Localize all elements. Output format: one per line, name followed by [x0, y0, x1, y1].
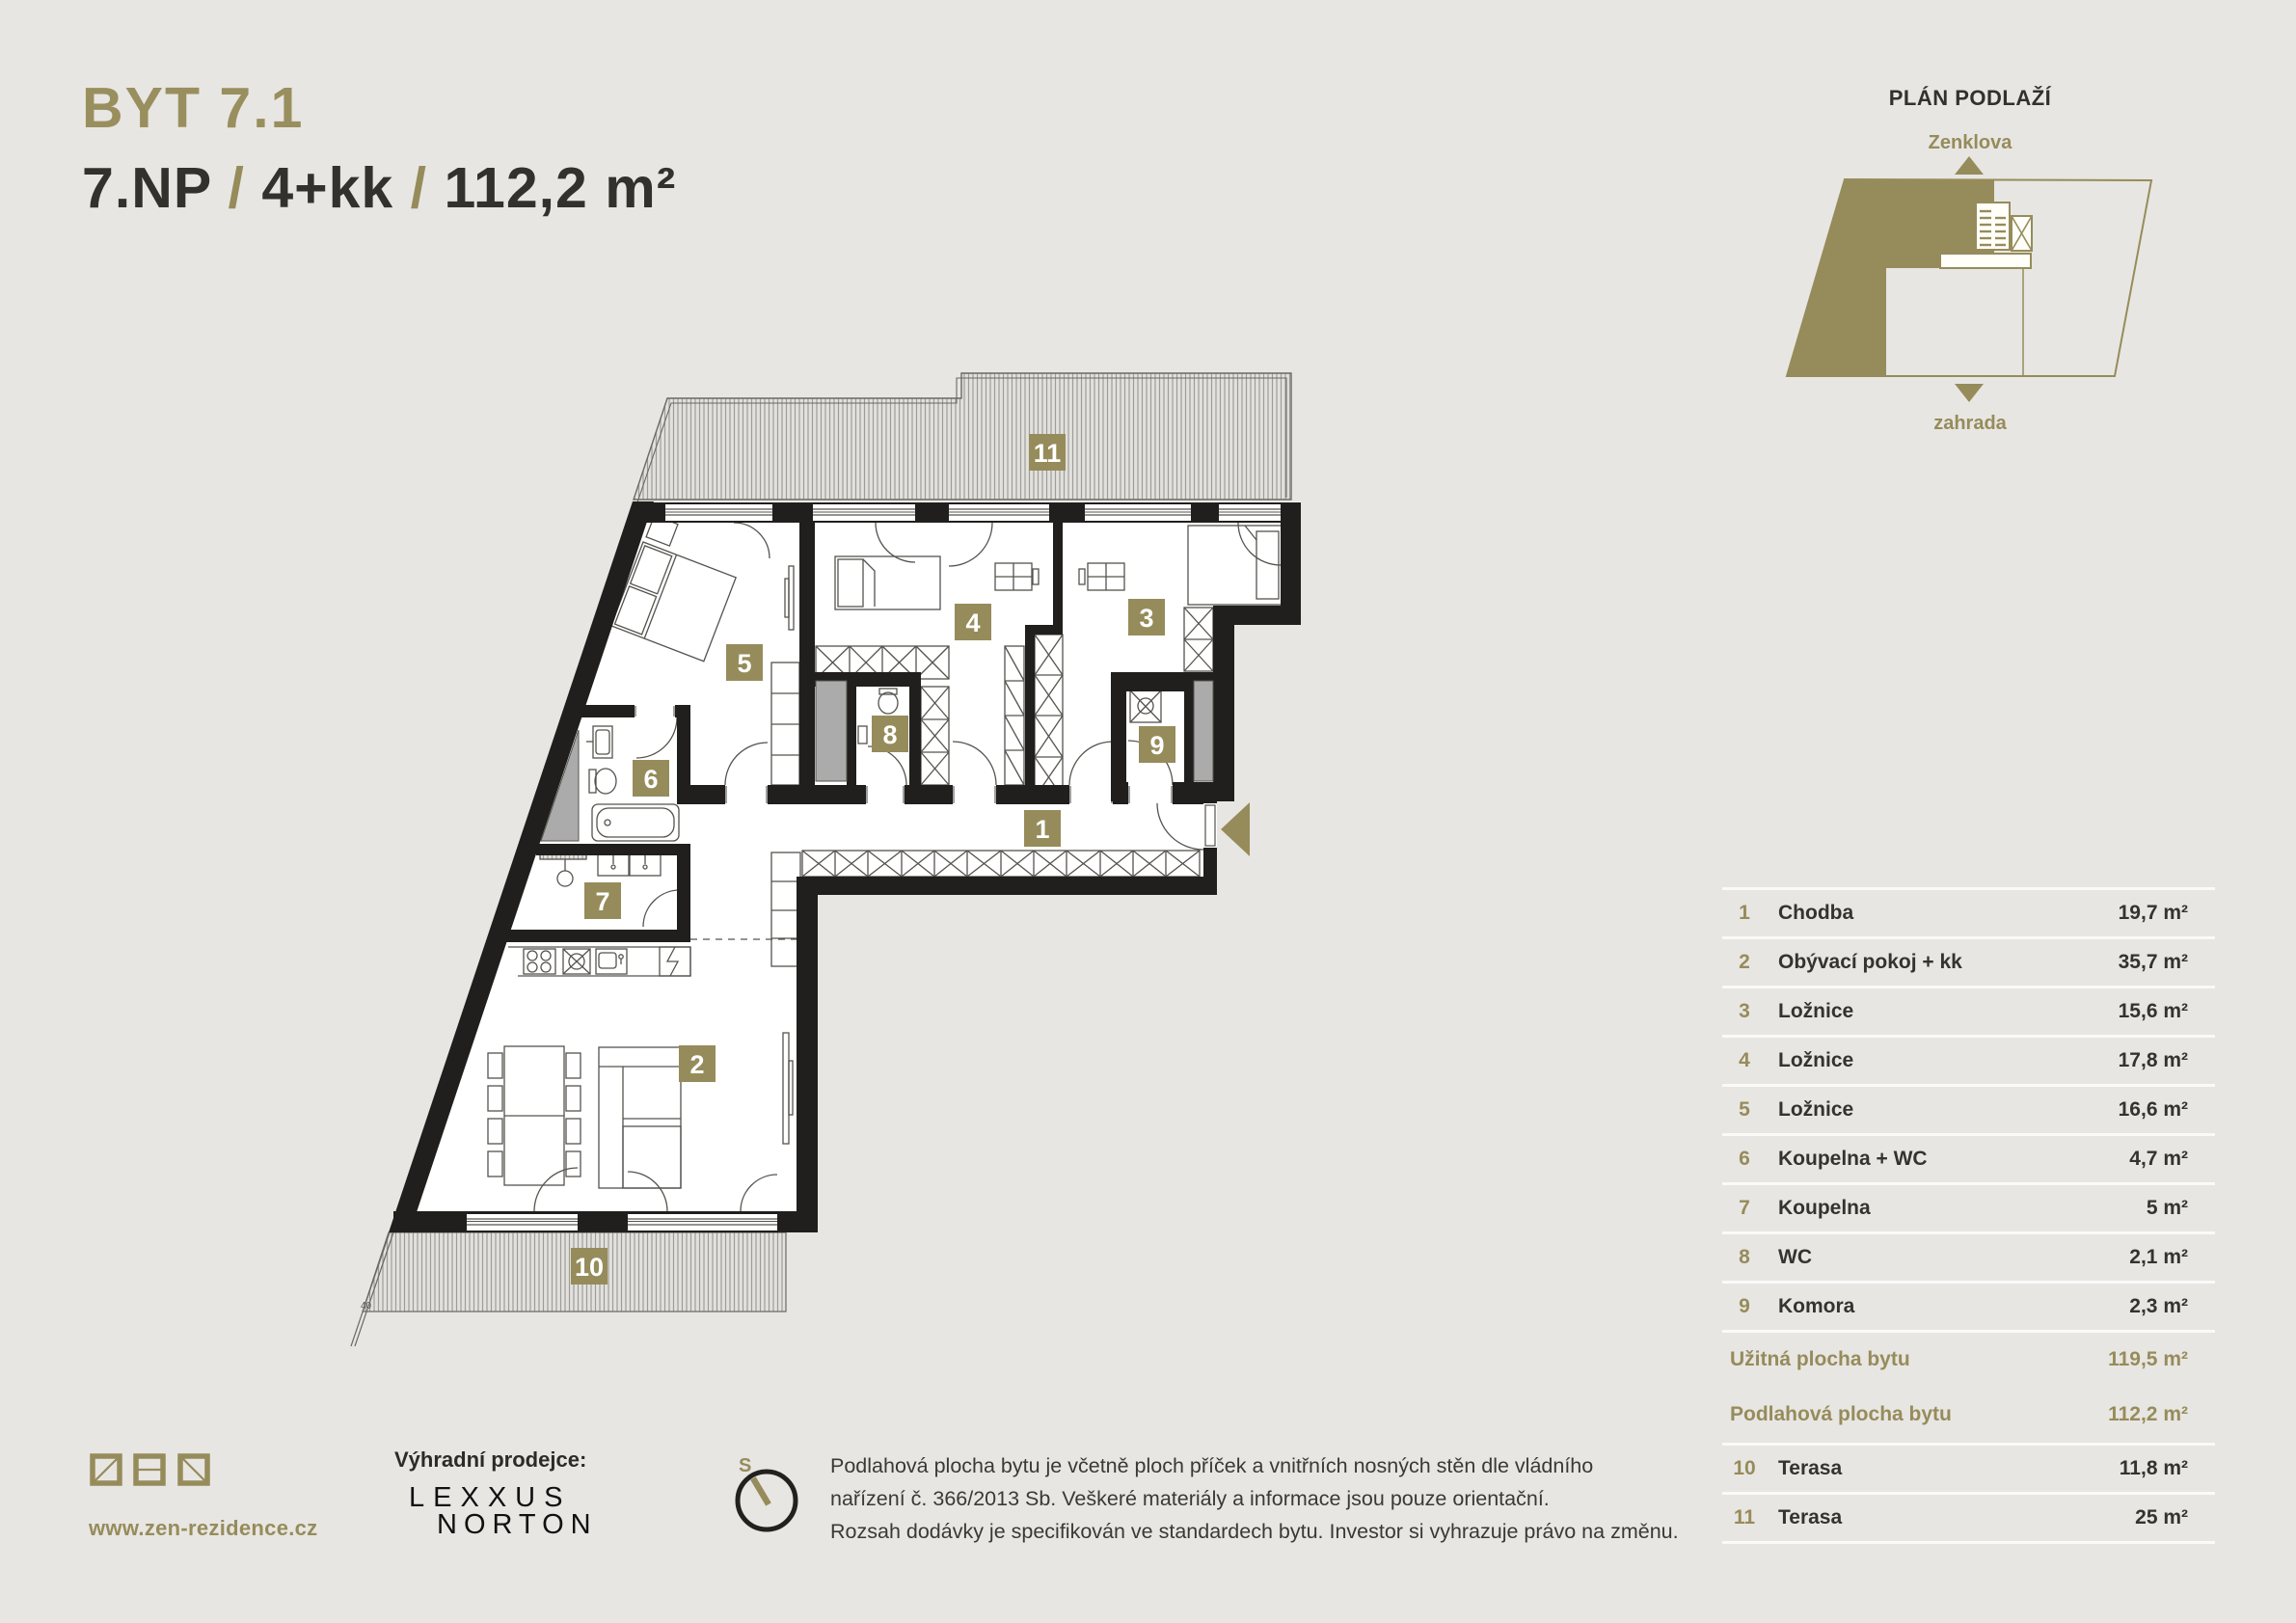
svg-text:2: 2 — [689, 1050, 704, 1079]
svg-text:10: 10 — [575, 1253, 604, 1282]
svg-text:7: 7 — [595, 887, 609, 916]
svg-text:1: 1 — [1035, 815, 1049, 844]
svg-text:6: 6 — [643, 765, 658, 794]
svg-text:8: 8 — [882, 720, 897, 749]
svg-text:5: 5 — [737, 649, 751, 678]
svg-text:S: S — [739, 1455, 751, 1476]
svg-text:3: 3 — [1139, 604, 1153, 633]
svg-text:11: 11 — [1034, 439, 1062, 468]
svg-text:4: 4 — [965, 609, 980, 637]
svg-text:9: 9 — [1149, 731, 1164, 760]
